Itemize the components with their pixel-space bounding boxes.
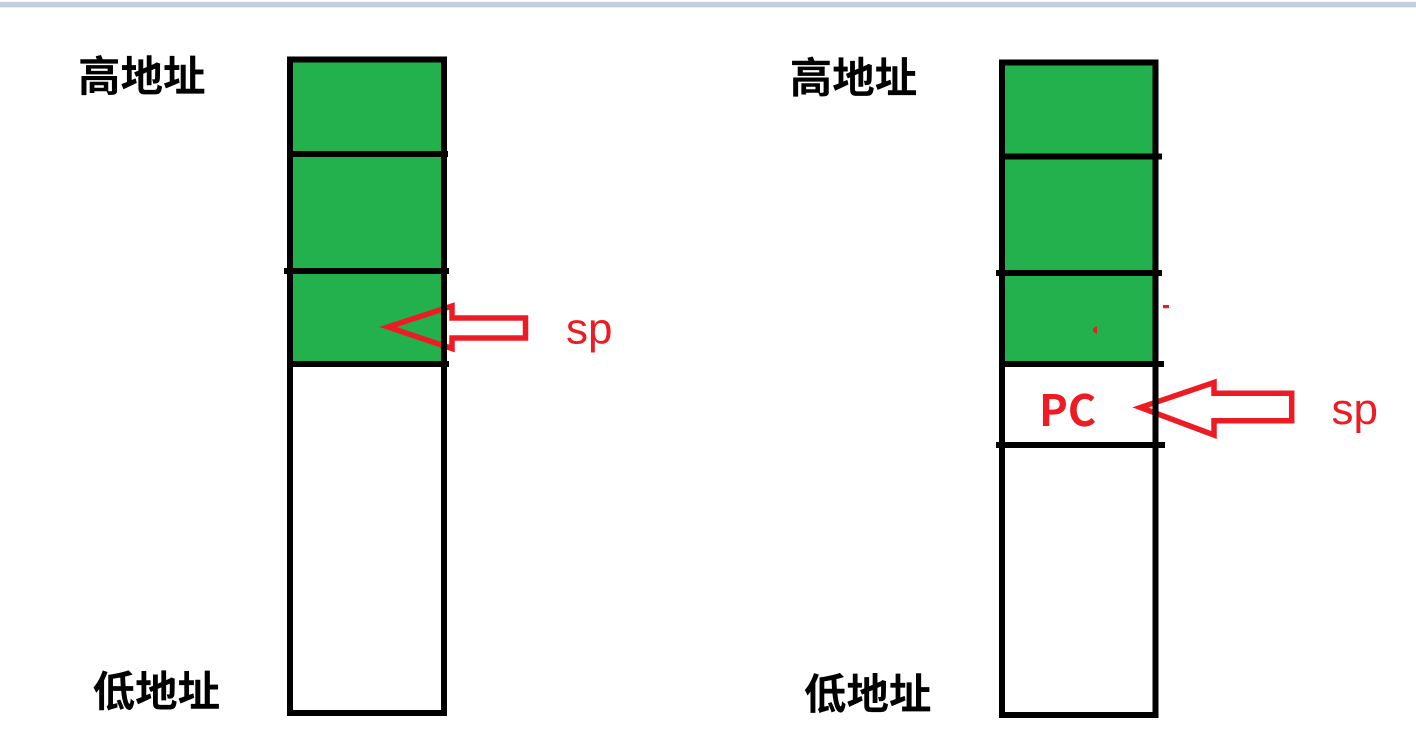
svg-text:sp: sp xyxy=(566,305,612,354)
svg-text:sp: sp xyxy=(1332,385,1378,434)
